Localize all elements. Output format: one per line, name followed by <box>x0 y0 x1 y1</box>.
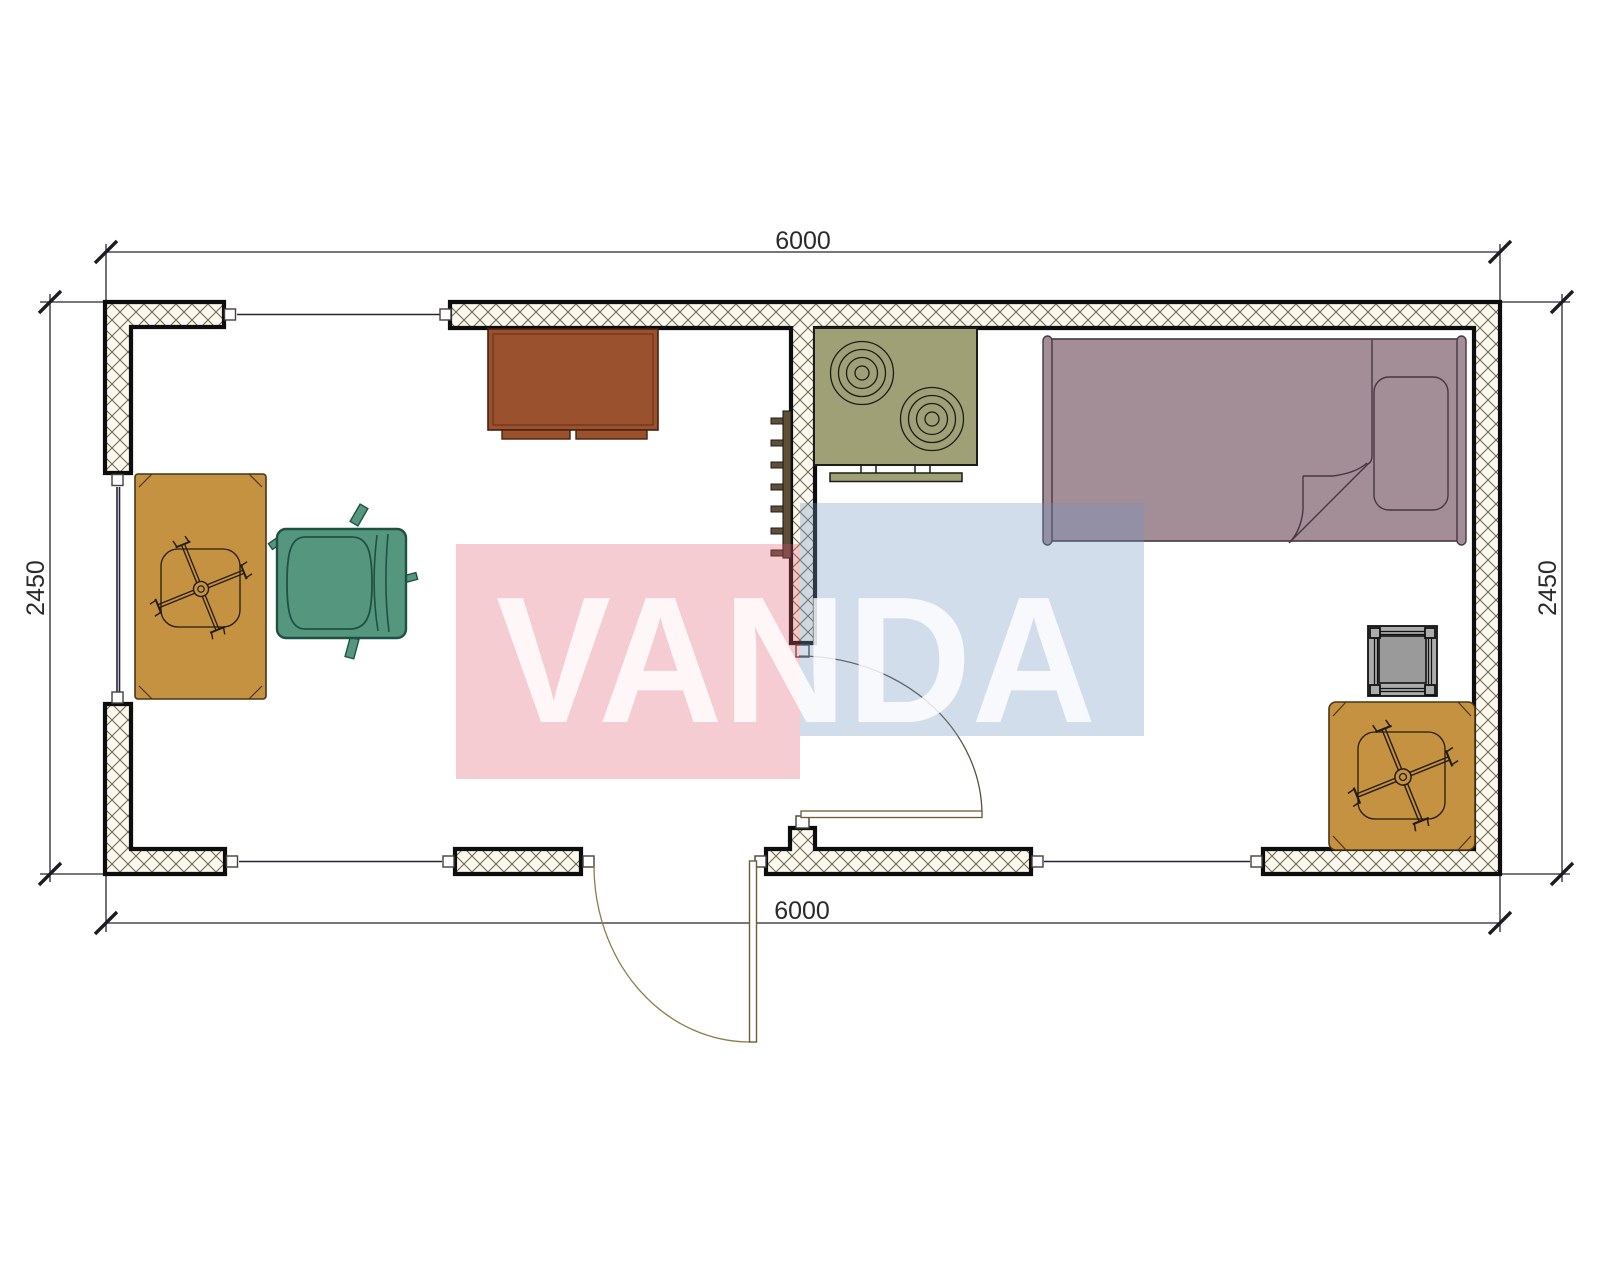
svg-text:VANDA: VANDA <box>496 560 1096 761</box>
svg-text:2450: 2450 <box>1534 560 1562 616</box>
svg-text:2450: 2450 <box>22 560 50 616</box>
svg-text:6000: 6000 <box>775 227 831 255</box>
svg-text:6000: 6000 <box>774 897 830 925</box>
